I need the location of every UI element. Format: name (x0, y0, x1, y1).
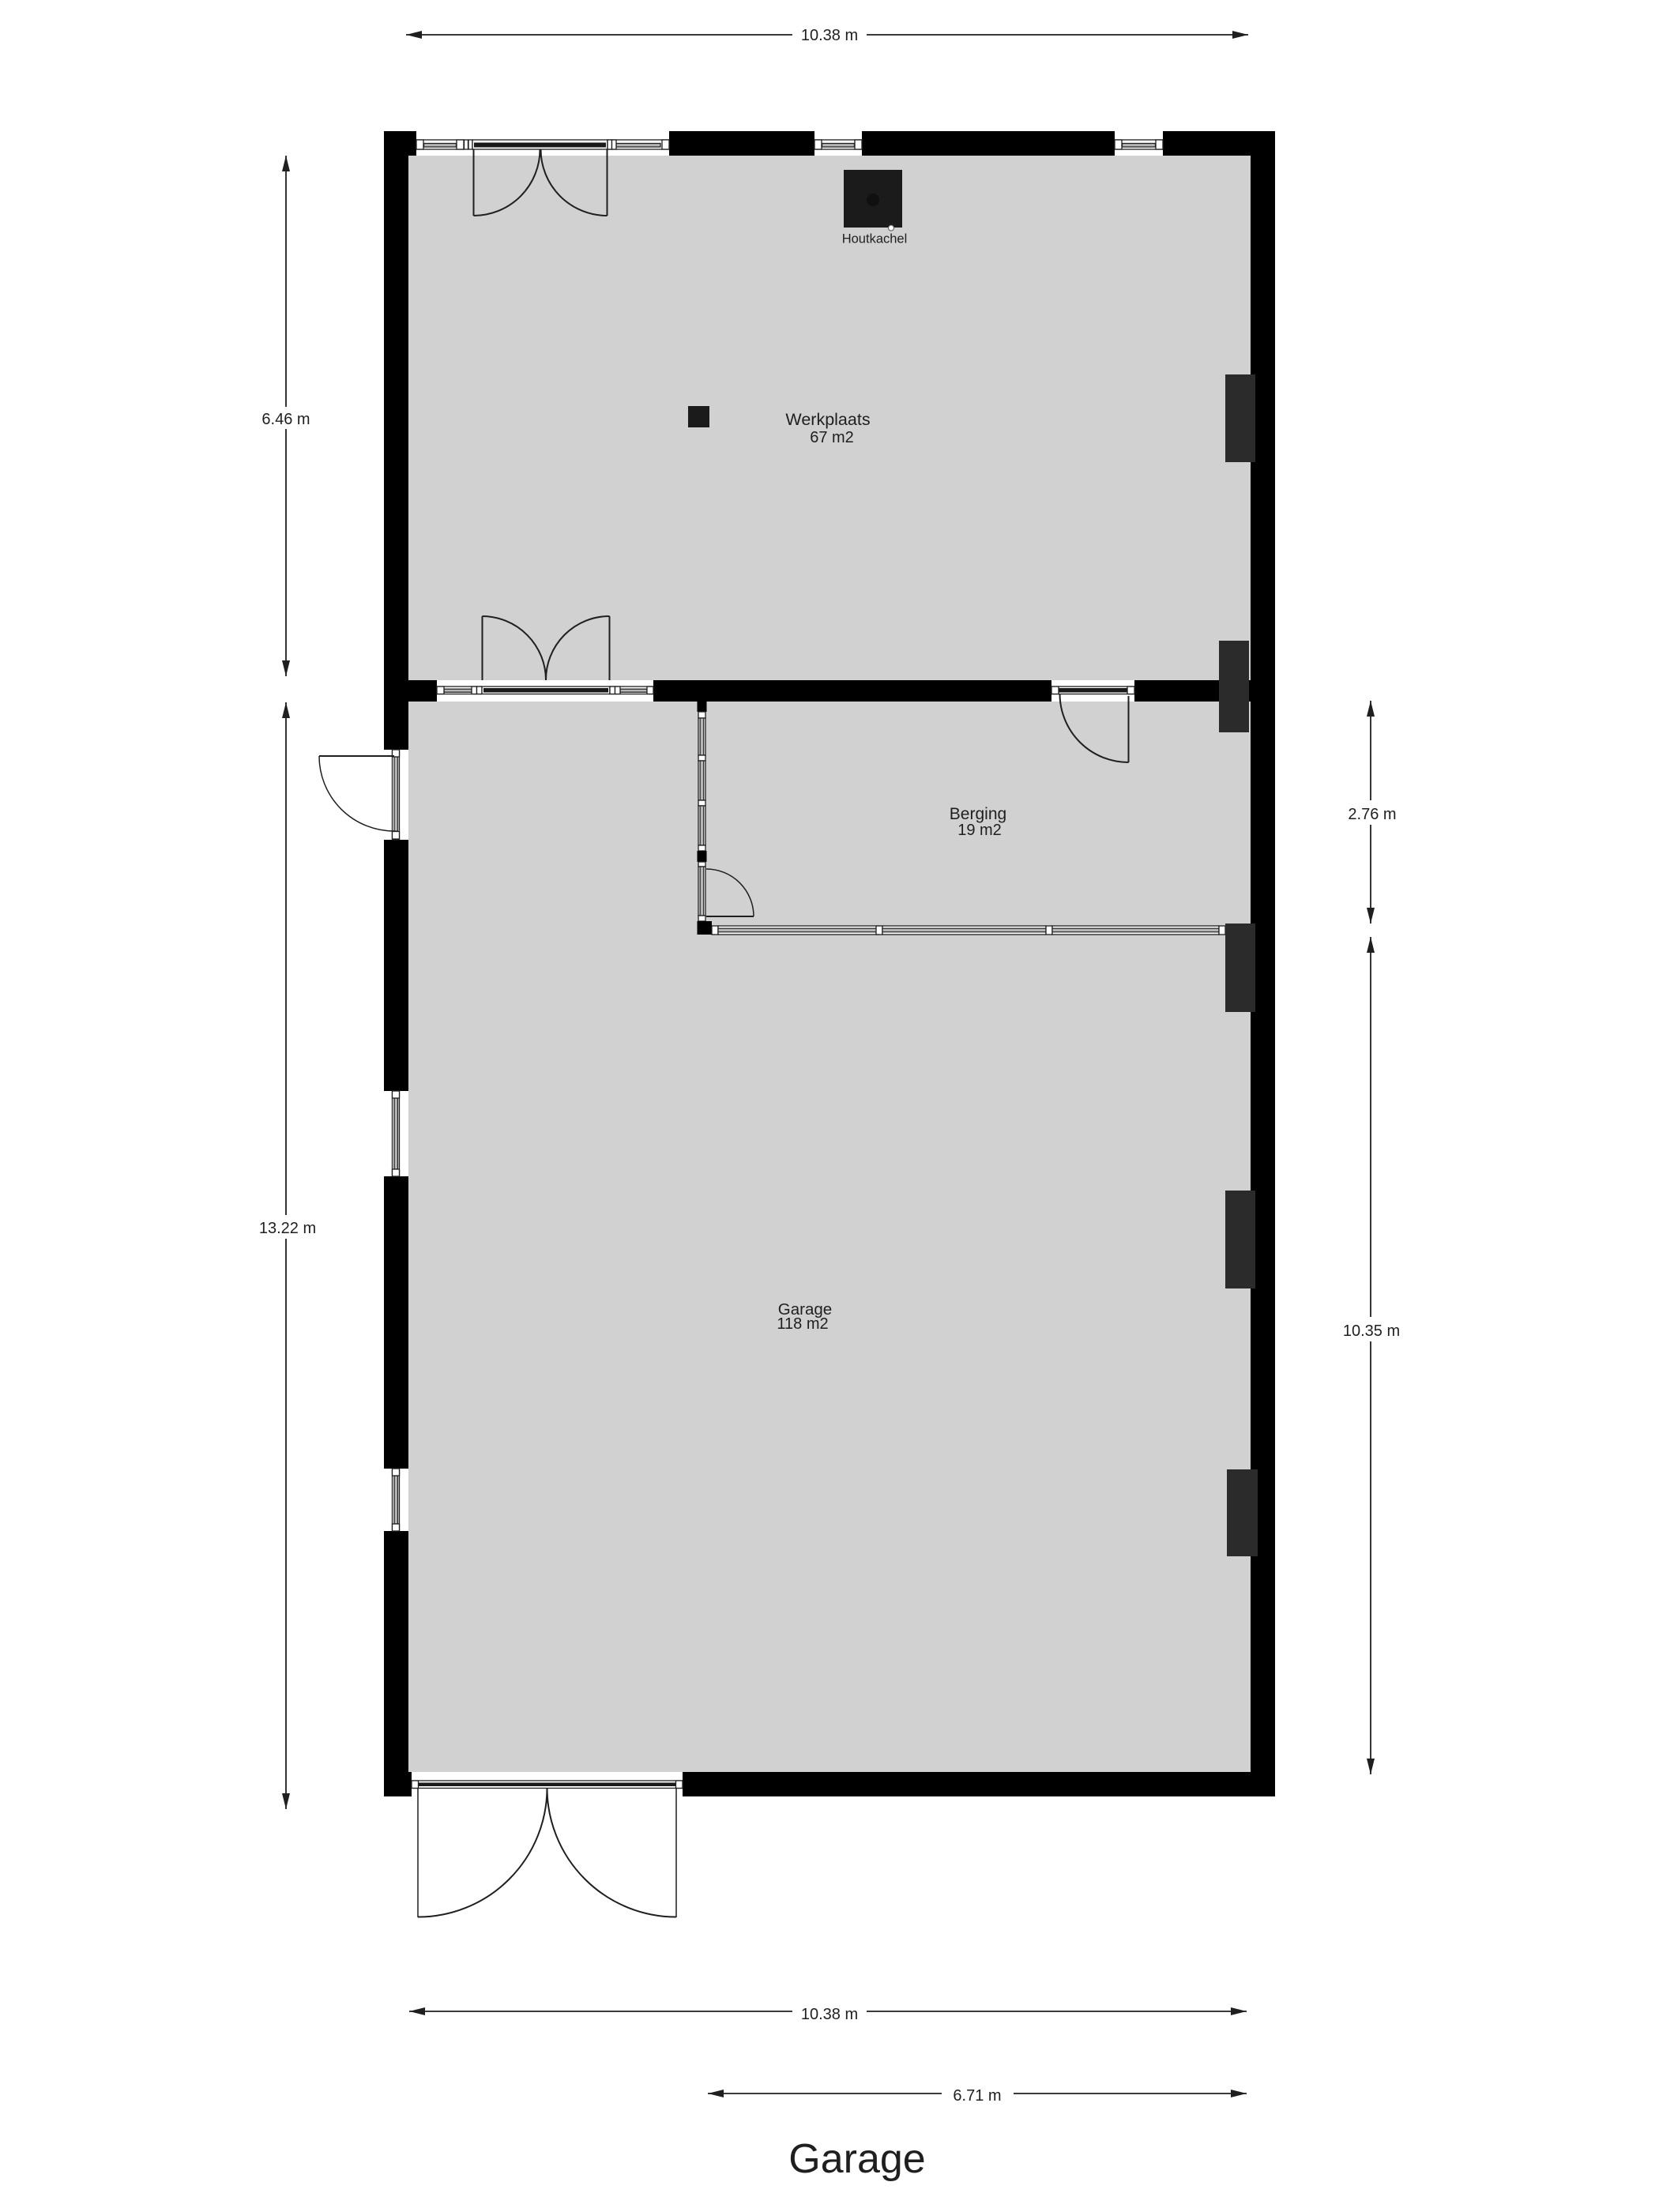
svg-text:Houtkachel: Houtkachel (842, 232, 908, 246)
svg-text:Garage: Garage (788, 2136, 925, 2182)
svg-text:10.35 m: 10.35 m (1343, 1322, 1400, 1340)
svg-text:6.71 m: 6.71 m (953, 2087, 1001, 2105)
svg-text:118 m2: 118 m2 (777, 1315, 828, 1333)
svg-text:10.38 m: 10.38 m (801, 2006, 858, 2023)
svg-text:67 m2: 67 m2 (810, 429, 854, 446)
svg-text:10.38 m: 10.38 m (801, 27, 858, 44)
svg-text:2.76 m: 2.76 m (1348, 806, 1396, 823)
svg-text:6.46 m: 6.46 m (261, 411, 310, 428)
svg-text:Berging: Berging (950, 805, 1006, 823)
svg-text:Werkplaats: Werkplaats (785, 410, 870, 429)
svg-text:19 m2: 19 m2 (957, 822, 1002, 839)
svg-text:13.22 m: 13.22 m (259, 1220, 316, 1237)
